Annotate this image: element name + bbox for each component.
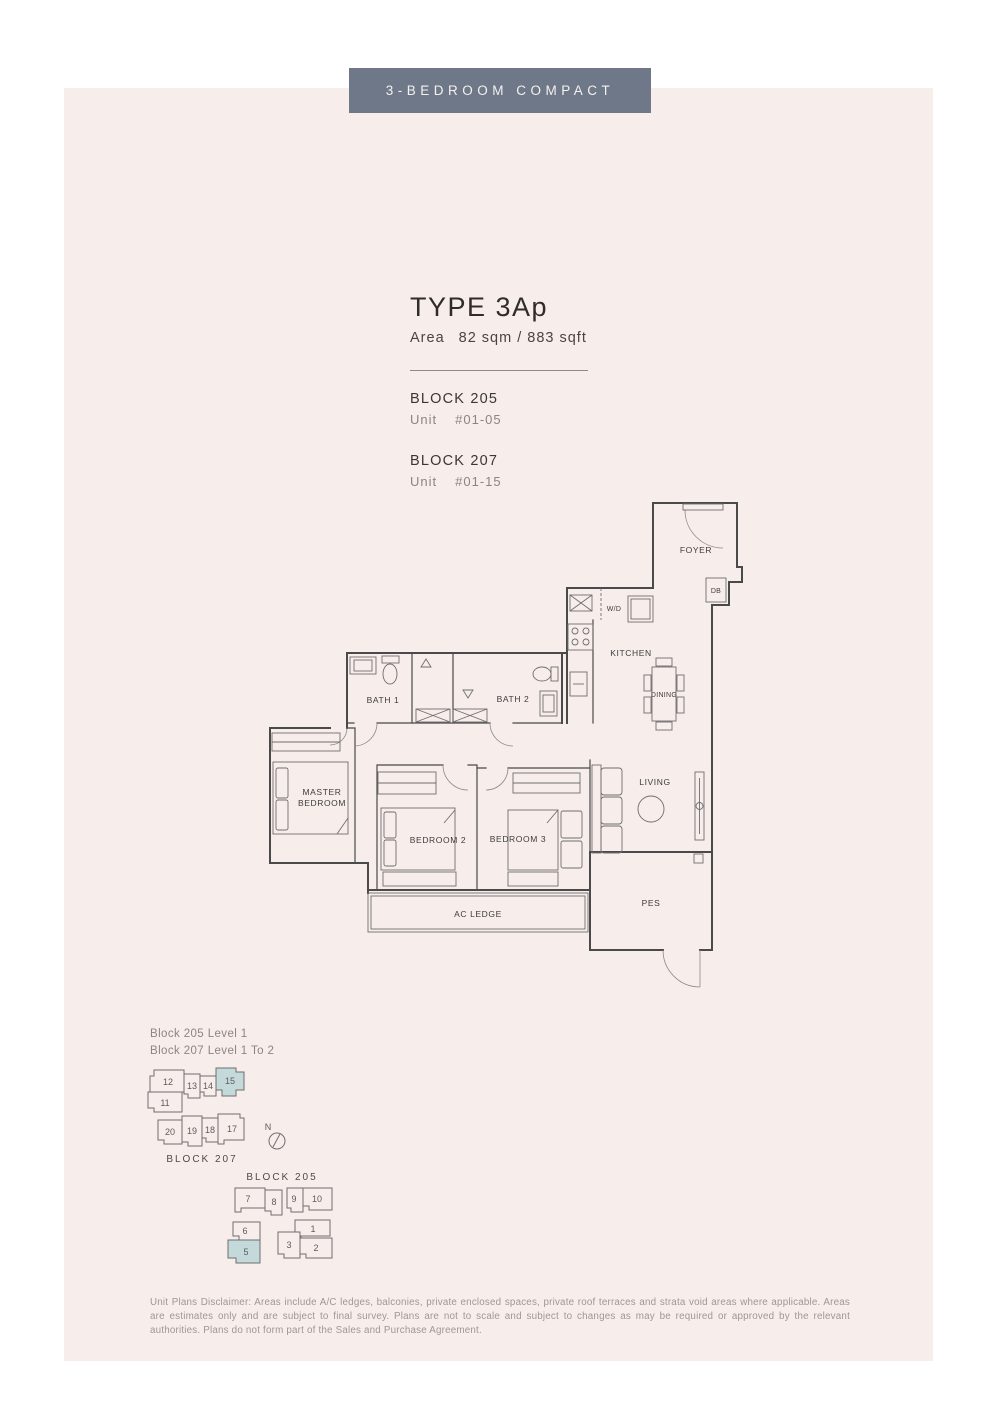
floor-plan-svg: FOYER DB W/D KITCHEN DINING BATH 1 BATH …	[250, 490, 750, 1010]
room-label-bedroom2: BEDROOM 2	[410, 835, 466, 845]
pes-gate-arc	[663, 950, 700, 987]
keyplan-num: 12	[163, 1077, 173, 1087]
keyplan-207-svg: 12 13 14 15 11 20 19 18 17 BLOCK 207 N	[140, 1056, 310, 1172]
block-205-info: BLOCK 205 Unit#01-05	[410, 391, 640, 427]
area-line: Area82 sqm / 883 sqft	[410, 330, 640, 346]
keyplan-num: 8	[271, 1197, 276, 1207]
keyplan-num: 7	[245, 1194, 250, 1204]
room-label-pes: PES	[642, 898, 661, 908]
room-label-foyer: FOYER	[680, 545, 712, 555]
unit-label: Unit	[410, 474, 437, 489]
keyplan-num: 5	[243, 1247, 248, 1257]
keyplan-num: 1	[310, 1224, 315, 1234]
stove-icon	[568, 624, 593, 650]
type-banner: 3-BEDROOM COMPACT	[349, 68, 651, 113]
bath1-toilet-icon	[382, 656, 399, 684]
room-label-kitchen: KITCHEN	[610, 648, 652, 658]
block-207-info: BLOCK 207 Unit#01-15	[410, 453, 640, 489]
living-window	[695, 772, 704, 840]
keyplan-207-label: BLOCK 207	[166, 1154, 237, 1165]
keyplan-num: 9	[291, 1194, 296, 1204]
area-value: 82 sqm / 883 sqft	[459, 330, 587, 346]
fridge-icon	[570, 672, 587, 696]
keyplan-num: 19	[187, 1126, 197, 1136]
room-label-bedroom3: BEDROOM 3	[490, 834, 546, 844]
disclaimer-text: Unit Plans Disclaimer: Areas include A/C…	[150, 1296, 850, 1339]
area-label: Area	[410, 330, 445, 346]
keyplan-205-label: BLOCK 205	[246, 1172, 317, 1183]
block-name: BLOCK 205	[410, 391, 640, 407]
keyplan-num: 18	[205, 1125, 215, 1135]
shower-icon	[463, 690, 473, 698]
keyplan-num: 10	[312, 1194, 322, 1204]
entry-door-leaf	[683, 504, 723, 510]
type-banner-label: 3-BEDROOM COMPACT	[386, 83, 615, 98]
keyplan-block-205: BLOCK 205 7 8 9 10 6 1 5 3 2	[220, 1168, 345, 1273]
bath1-fixtures	[350, 656, 487, 722]
unit-label: Unit	[410, 412, 437, 427]
bedroom2-bed-icon	[378, 772, 456, 886]
room-label-db: DB	[711, 588, 721, 595]
room-label-master-1: MASTER	[302, 787, 341, 797]
unit-line: Unit#01-05	[410, 412, 640, 427]
keyplan-num: 14	[203, 1081, 213, 1091]
bath2-fixtures	[533, 667, 558, 716]
room-label-living: LIVING	[639, 777, 670, 787]
unit-info: TYPE 3Ap Area82 sqm / 883 sqft BLOCK 205…	[410, 292, 640, 489]
column-box	[694, 854, 703, 863]
kitchen-cabinet-icon	[628, 596, 653, 622]
level-line-1: Block 205 Level 1	[150, 1026, 274, 1043]
compass-n-label: N	[265, 1122, 272, 1132]
keyplan-num: 6	[242, 1226, 247, 1236]
divider-line	[410, 370, 588, 371]
brochure-page: 3-BEDROOM COMPACT TYPE 3Ap Area82 sqm / …	[0, 0, 1000, 1426]
block-name: BLOCK 207	[410, 453, 640, 469]
room-label-ac-ledge: AC LEDGE	[454, 909, 502, 919]
vanity-boxes	[416, 709, 487, 722]
door-arcs	[330, 504, 723, 987]
unit-line: Unit#01-15	[410, 474, 640, 489]
keyplan-num: 17	[227, 1124, 237, 1134]
keyplan-num: 3	[286, 1240, 291, 1250]
room-label-bath2: BATH 2	[497, 694, 530, 704]
kitchen-fixtures	[568, 588, 653, 696]
coffee-table-icon	[638, 796, 664, 822]
keyplan-num: 2	[313, 1243, 318, 1253]
room-label-master-2: BEDROOM	[298, 798, 346, 808]
type-title: TYPE 3Ap	[410, 292, 640, 323]
unit-number: #01-15	[455, 474, 501, 489]
keyplan-205-svg: BLOCK 205 7 8 9 10 6 1 5 3 2	[220, 1168, 345, 1273]
compass-icon: N	[265, 1122, 285, 1149]
keyplan-num: 15	[225, 1076, 235, 1086]
room-label-dining: DINING	[651, 692, 677, 699]
bath2-sink-icon	[540, 691, 557, 716]
floor-plan: FOYER DB W/D KITCHEN DINING BATH 1 BATH …	[250, 490, 750, 1010]
room-label-bath1: BATH 1	[367, 695, 400, 705]
keyplan-num: 11	[160, 1098, 169, 1108]
sofa-icon	[592, 765, 622, 853]
master-bed-icon	[272, 733, 348, 834]
unit-number: #01-05	[455, 412, 501, 427]
exterior-walls	[270, 503, 742, 950]
bedroom3-bed-icon	[508, 773, 582, 886]
bath2-toilet-icon	[533, 667, 558, 681]
keyplan-block-207: 12 13 14 15 11 20 19 18 17 BLOCK 207 N	[140, 1056, 310, 1172]
keyplan-num: 20	[165, 1127, 175, 1137]
room-label-wd: W/D	[607, 606, 622, 613]
shower-icon	[421, 659, 431, 667]
keyplan-num: 13	[187, 1081, 197, 1091]
